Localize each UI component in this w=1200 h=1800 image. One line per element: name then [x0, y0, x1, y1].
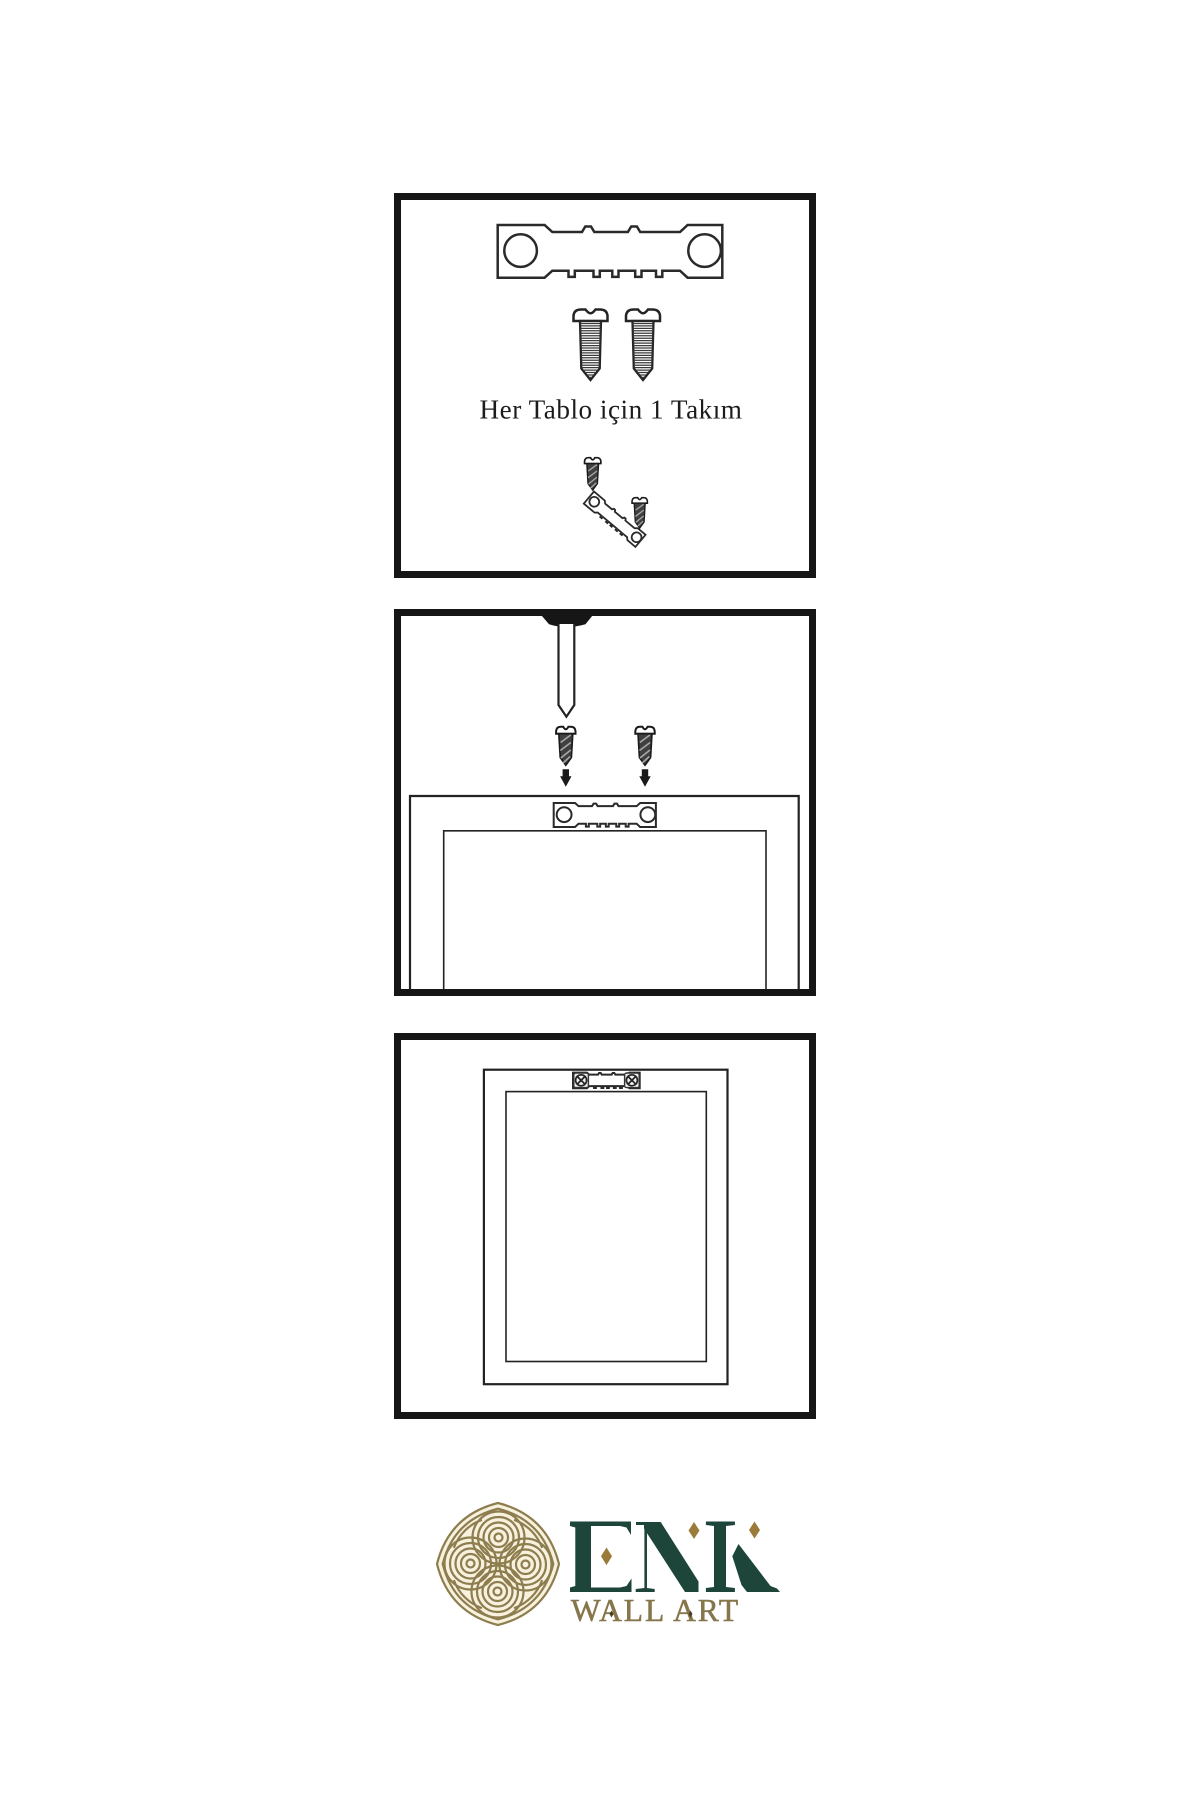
svg-text:Her Tablo için 1 Takım: Her Tablo için 1 Takım: [480, 395, 743, 425]
svg-text:WALL ART: WALL ART: [571, 1593, 740, 1628]
